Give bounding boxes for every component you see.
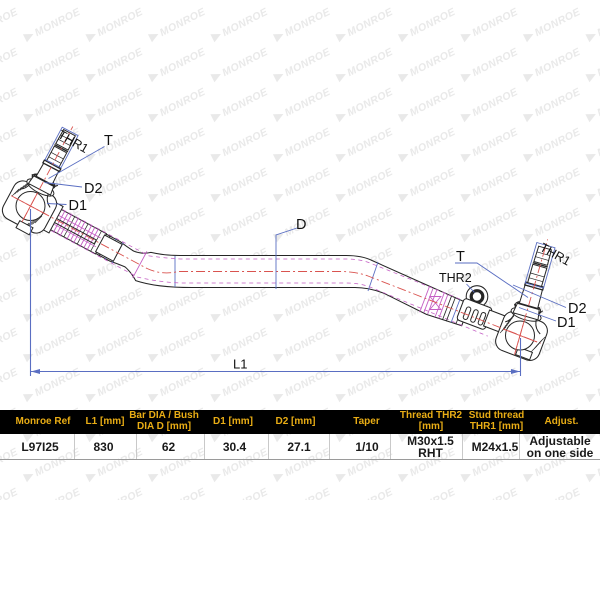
svg-text:T: T (456, 249, 465, 265)
svg-text:D1: D1 (557, 315, 576, 331)
svg-text:T: T (104, 133, 113, 149)
svg-text:D1: D1 (69, 198, 88, 214)
svg-text:THR2: THR2 (439, 271, 472, 285)
svg-text:D2: D2 (84, 181, 103, 197)
svg-text:D: D (296, 217, 306, 233)
svg-text:L1: L1 (233, 357, 247, 372)
